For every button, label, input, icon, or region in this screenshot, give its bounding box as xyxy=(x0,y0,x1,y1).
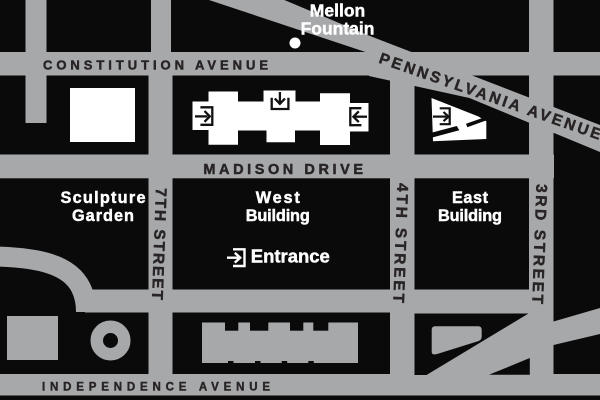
svg-text:INDEPENDENCE AVENUE: INDEPENDENCE AVENUE xyxy=(42,382,270,394)
svg-text:MADISON DRIVE: MADISON DRIVE xyxy=(203,162,363,178)
svg-text:West: West xyxy=(256,189,301,207)
svg-text:CONSTITUTION AVENUE: CONSTITUTION AVENUE xyxy=(43,58,268,73)
svg-text:Sculpture: Sculpture xyxy=(61,189,146,207)
svg-text:East: East xyxy=(452,189,489,207)
svg-text:Mellon: Mellon xyxy=(310,1,365,21)
svg-text:Garden: Garden xyxy=(72,207,134,225)
svg-text:Building: Building xyxy=(246,207,310,225)
svg-text:Entrance: Entrance xyxy=(251,245,330,266)
svg-text:Fountain: Fountain xyxy=(301,19,375,39)
svg-text:Building: Building xyxy=(438,207,502,225)
